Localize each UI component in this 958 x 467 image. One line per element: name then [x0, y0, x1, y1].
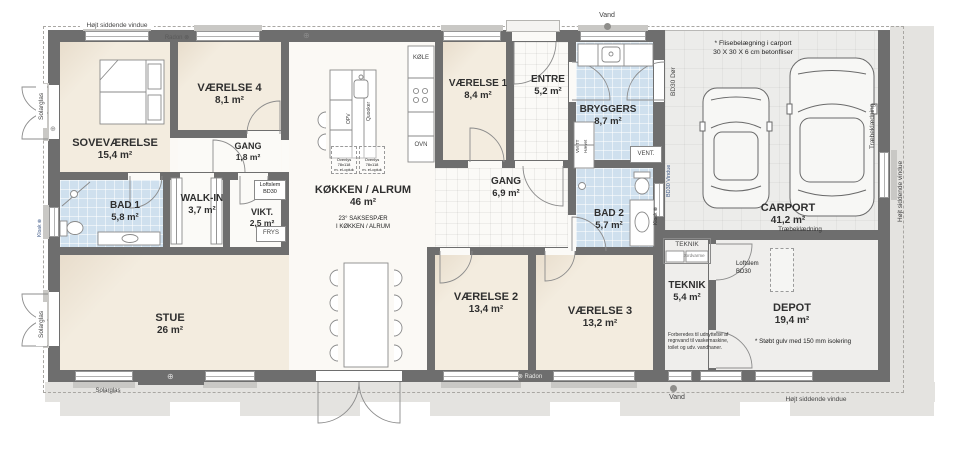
- loftslem-depot-box: [770, 248, 794, 292]
- vand-label-bottom: Vand: [662, 394, 692, 401]
- room-label-bryggers: BRYGGERS8,7 m²: [558, 104, 658, 127]
- door-opening: [515, 161, 563, 168]
- quooker-label: Quooker: [366, 92, 372, 130]
- vaerelse1-floor: [443, 42, 506, 160]
- radon-label-bottom: ⊗ Radon: [510, 373, 550, 380]
- room-label-sovevaerelse: SOVEVÆRELSE15,4 m²: [55, 137, 175, 162]
- vent-symbol: ⊕: [50, 126, 56, 133]
- kloak-label-left: Kloak ⊗: [37, 212, 43, 244]
- entrance-step: [506, 20, 560, 32]
- vand-dot-bottom: [670, 385, 677, 392]
- ovn-label: OVN: [408, 142, 434, 148]
- traebeklaedning-label-mid: Træbeklædning: [762, 226, 838, 233]
- carport-paving-note: * Flisebelægning i carport30 X 30 X 6 cm…: [698, 40, 808, 58]
- door-opening: [468, 161, 502, 168]
- door-opening: [49, 292, 59, 346]
- room-label-koekken: KØKKEN / ALRUM46 m²: [295, 184, 431, 209]
- traebeklaedning-label-right: Træbeklædning: [869, 100, 876, 152]
- wall-v1-entre: [506, 42, 514, 168]
- window-sill: [203, 382, 257, 388]
- door-opening: [440, 248, 470, 255]
- ground-apron-notch: [430, 400, 550, 416]
- room-label-gang1: GANG1,8 m²: [215, 141, 281, 162]
- room-label-stue: STUE26 m²: [120, 312, 220, 337]
- kloak-label-bad2: Kloak ⊗: [653, 198, 659, 234]
- high-window-label-right: Højt siddende vindue: [897, 156, 904, 226]
- entre-floor: [514, 42, 568, 160]
- room-label-carport: CARPORT41,2 m²: [738, 202, 838, 227]
- koele-label: KØLE: [408, 55, 434, 61]
- door-opening: [316, 371, 402, 381]
- door-opening: [128, 173, 160, 180]
- carport-edge-line: [665, 30, 878, 31]
- vand-label-top: Vand: [592, 12, 622, 19]
- high-window-label-bottom: Højt siddende vindue: [780, 396, 852, 403]
- door-opening: [282, 140, 289, 172]
- ground-apron-notch: [620, 400, 740, 416]
- room-label-teknik: TEKNIK5,4 m²: [647, 280, 727, 303]
- truss-note: 23° SAKSESPÆRI KØKKEN / ALRUM: [320, 216, 406, 232]
- room-label-bad2: BAD 25,7 m²: [569, 208, 649, 231]
- ground-apron-notch: [60, 400, 170, 416]
- ground-apron-notch: [240, 400, 360, 416]
- vent-symbol: ⊕: [303, 32, 310, 40]
- radon-label-top: Radon ⊗: [158, 34, 196, 41]
- rainwater-note: Forberedes til udnyttelse af regnvand ti…: [668, 332, 732, 351]
- solarglas-label-bottom: Solarglas: [86, 388, 130, 394]
- loftslem-depot-label: LoftslemBD30: [736, 261, 770, 277]
- room-label-gang2: GANG6,9 m²: [466, 176, 546, 199]
- room-label-vaerelse2: VÆRELSE 213,4 m²: [436, 291, 536, 316]
- room-label-depot: DEPOT19,4 m²: [742, 302, 842, 327]
- door-opening: [247, 131, 281, 138]
- window: [700, 371, 742, 381]
- loftslem-label: LoftslemBD30: [254, 182, 286, 196]
- window: [668, 371, 692, 381]
- opv-label: OPV: [346, 106, 352, 132]
- vent-symbol: ⊕: [167, 373, 174, 381]
- wall-v4-kitchen: [281, 42, 289, 140]
- window: [879, 152, 889, 198]
- window: [443, 31, 501, 41]
- window: [580, 31, 646, 41]
- solarglas-label-left-top: Solarglas: [36, 84, 47, 128]
- window: [85, 31, 149, 41]
- wall-depot-right: [878, 230, 890, 382]
- jordvarme-label: Jordvarme: [678, 253, 710, 258]
- wall-strip-bottom: [60, 247, 289, 255]
- haevet-label: Hævet: [583, 126, 588, 166]
- window-sill: [551, 382, 637, 388]
- window: [553, 371, 635, 381]
- room-label-entre: ENTRE5,2 m²: [508, 74, 588, 97]
- room-label-vaerelse3: VÆRELSE 313,2 m²: [550, 305, 650, 330]
- door-opening: [545, 248, 575, 255]
- door-opening: [654, 60, 664, 102]
- window-sill: [441, 382, 521, 388]
- window: [196, 31, 260, 41]
- door-opening: [180, 173, 214, 180]
- window: [443, 371, 519, 381]
- floor-plan: ⊕ ⊕ ⊕: [0, 0, 958, 467]
- wall-sove-v4: [170, 42, 178, 138]
- ovenlys-label: Ovenlys78x118m. el-opluk: [359, 158, 385, 172]
- carport-floor: [665, 30, 878, 230]
- door-opening: [512, 31, 556, 41]
- bd30-window-label: BD30 Vindue: [666, 156, 672, 206]
- wall-kitchen-v2: [427, 247, 435, 372]
- room-label-vikt: VIKT.2,5 m²: [232, 207, 292, 228]
- door-opening: [238, 173, 268, 180]
- frys-label: FRYS: [258, 230, 284, 236]
- solarglas-label-left-bottom: Solarglas: [36, 302, 47, 346]
- vand-dot-top: [604, 23, 611, 30]
- bd30-door-label: BD30 Dør: [670, 60, 677, 104]
- wall-bad2-bottom: [568, 247, 665, 255]
- wall-carport-right: [878, 30, 890, 230]
- teknik-unit-label: TEKNIK: [665, 241, 709, 248]
- window: [75, 371, 133, 381]
- depot-floor-note: * Støbt gulv med 150 mm isolering: [745, 338, 861, 346]
- wall-kitchen-v1: [435, 42, 443, 168]
- vm-tt-label: VM TT: [575, 126, 580, 166]
- window: [205, 371, 255, 381]
- window: [755, 371, 813, 381]
- vent-label: VENT.: [632, 151, 660, 157]
- ovenlys-label: Ovenlys78x118m. el-opluk: [331, 158, 357, 172]
- high-window-label-top: Højt siddende vindue: [80, 22, 154, 29]
- room-label-vaerelse4: VÆRELSE 48,1 m²: [178, 82, 281, 107]
- window: [49, 207, 59, 237]
